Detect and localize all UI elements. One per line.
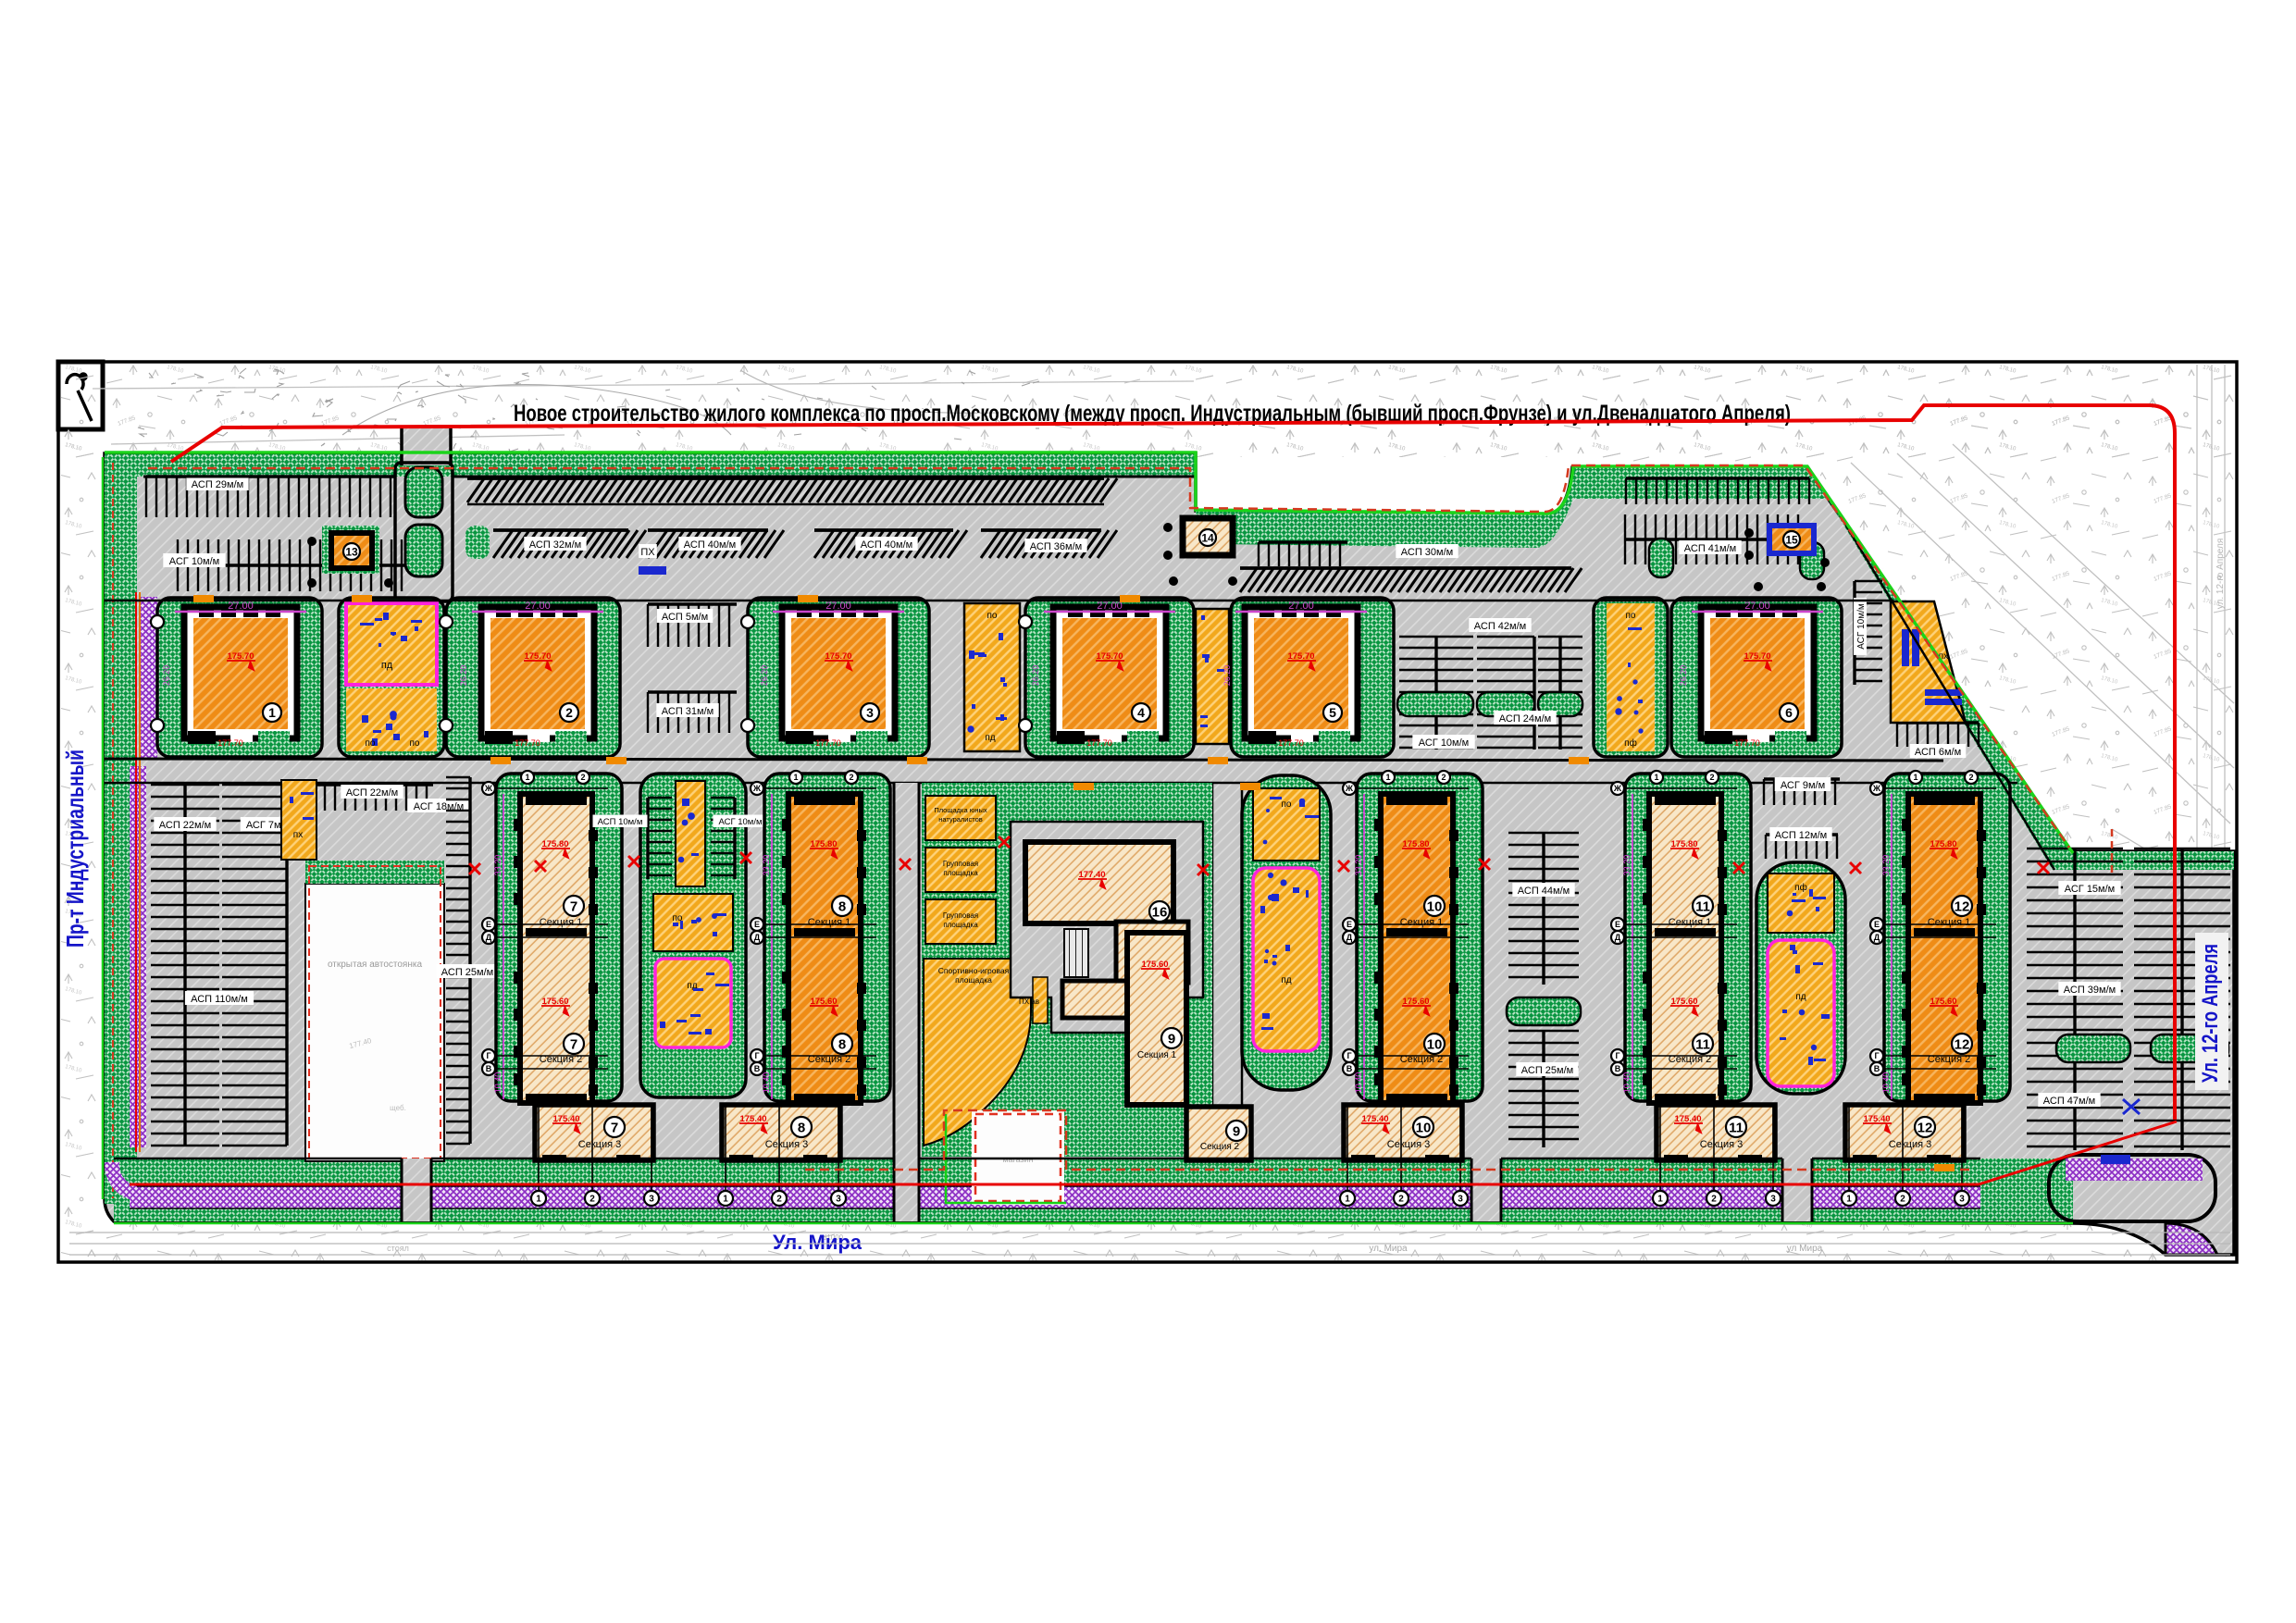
svg-text:АСП 30м/м: АСП 30м/м [1401,547,1453,558]
svg-text:Д: Д [1347,933,1353,942]
svg-text:ПХ: ПХ [640,547,655,558]
svg-text:площадка: площадка [943,921,978,929]
svg-text:8: 8 [838,1036,846,1052]
svg-text:пд: пд [1281,975,1291,985]
svg-text:175.70: 175.70 [1744,651,1770,662]
svg-text:27.00: 27.00 [1288,601,1314,612]
svg-text:27.00: 27.00 [1744,601,1770,612]
svg-text:33.20: 33.20 [1354,855,1363,876]
svg-text:Д: Д [486,933,492,942]
svg-text:177.70: 177.70 [1086,738,1112,748]
svg-text:1: 1 [1385,773,1390,782]
svg-text:2: 2 [776,1195,782,1205]
svg-text:175.60: 175.60 [1930,997,1956,1007]
svg-text:АСГ 10м/м: АСГ 10м/м [169,556,219,567]
svg-text:АСП 40м/м: АСП 40м/м [684,539,736,551]
svg-text:8: 8 [838,898,846,914]
svg-text:175.60: 175.60 [810,997,837,1007]
svg-text:2: 2 [1398,1195,1404,1205]
svg-text:177.70: 177.70 [815,738,841,748]
svg-text:9: 9 [1168,1031,1175,1047]
svg-text:Е: Е [754,920,760,929]
svg-text:2: 2 [590,1195,595,1205]
svg-text:АСП 24м/м: АСП 24м/м [1499,713,1551,725]
svg-text:1: 1 [268,705,276,720]
svg-text:175.40: 175.40 [552,1114,579,1124]
svg-text:АСП 47м/м: АСП 47м/м [2043,1096,2095,1107]
svg-text:АСП 29м/м: АСП 29м/м [192,479,243,490]
svg-text:стоял: стоял [387,1244,409,1253]
svg-text:177.70: 177.70 [515,738,540,748]
svg-text:9: 9 [1233,1123,1240,1139]
svg-text:АСП 42м/м: АСП 42м/м [1474,621,1526,632]
svg-text:Д: Д [754,933,761,942]
svg-text:по: по [1282,799,1292,810]
svg-text:Пр-т Индустриальный: Пр-т Индустриальный [61,750,89,948]
svg-text:3: 3 [836,1195,841,1205]
svg-text:В: В [754,1064,761,1073]
svg-text:3: 3 [1458,1195,1463,1205]
svg-text:пд: пд [381,660,393,671]
svg-text:7: 7 [611,1120,618,1135]
svg-text:Д: Д [1874,933,1880,942]
svg-text:175.40: 175.40 [1863,1114,1890,1124]
svg-text:щеб.: щеб. [390,1104,406,1112]
svg-text:Секция 1: Секция 1 [1137,1050,1177,1060]
svg-text:177.40: 177.40 [1078,870,1105,880]
svg-text:175.70: 175.70 [1096,651,1123,662]
svg-text:АСП 22м/м: АСП 22м/м [346,787,398,799]
svg-text:В: В [1874,1064,1880,1073]
svg-text:27.00: 27.00 [825,601,851,612]
svg-text:Ул. 12-го Апреля: Ул. 12-го Апреля [2198,944,2223,1083]
svg-text:11: 11 [1695,898,1710,914]
svg-text:175.70: 175.70 [227,651,254,662]
svg-text:АСП 32м/м: АСП 32м/м [529,539,581,551]
svg-text:В: В [1347,1064,1353,1073]
svg-text:площадка: площадка [943,869,978,877]
svg-text:Ж: Ж [752,784,762,793]
svg-text:ПХ,ав: ПХ,ав [1019,997,1039,1006]
svg-text:Ж: Ж [484,784,493,793]
svg-text:8: 8 [798,1120,805,1135]
svg-text:пф: пф [1624,737,1637,749]
svg-text:Г: Г [1615,1051,1620,1060]
svg-text:7: 7 [570,1036,577,1052]
svg-text:1: 1 [1657,1195,1663,1205]
svg-text:ул. Мира: ул. Мира [1369,1244,1408,1254]
svg-text:по: по [366,738,376,749]
svg-text:АСГ 10м/м: АСГ 10м/м [1419,737,1469,749]
svg-text:11: 11 [1695,1036,1710,1052]
svg-text:16: 16 [1152,904,1168,920]
svg-text:175.80: 175.80 [1930,839,1956,849]
svg-text:10.40: 10.40 [1354,1072,1363,1094]
svg-text:2: 2 [565,705,573,720]
svg-text:Ул. Мира: Ул. Мира [773,1231,863,1254]
svg-text:АСП 40м/м: АСП 40м/м [861,539,912,551]
svg-text:26.20: 26.20 [1031,665,1040,687]
svg-text:Ж: Ж [1345,784,1354,793]
svg-text:1: 1 [1654,773,1658,782]
svg-text:Е: Е [1615,920,1620,929]
svg-text:175.80: 175.80 [1670,839,1697,849]
svg-text:В: В [1615,1064,1621,1073]
svg-text:АСП 36м/м: АСП 36м/м [1030,541,1082,552]
svg-text:по: по [410,738,420,749]
svg-text:АСП 22м/м: АСП 22м/м [159,820,211,831]
svg-text:10.40: 10.40 [1622,1072,1632,1094]
svg-text:7: 7 [570,898,577,914]
svg-text:Е: Е [486,920,491,929]
svg-text:пх: пх [293,830,303,840]
svg-text:13: 13 [345,545,358,558]
svg-text:27.00: 27.00 [228,601,254,612]
svg-text:Секция 3: Секция 3 [1700,1139,1743,1150]
svg-text:14: 14 [1201,531,1214,544]
svg-text:175.70: 175.70 [1287,651,1314,662]
svg-text:175.60: 175.60 [1402,997,1429,1007]
svg-text:Секция 1: Секция 1 [540,917,582,928]
svg-text:1: 1 [793,773,798,782]
svg-text:2: 2 [1711,1195,1717,1205]
svg-text:26.20: 26.20 [1679,665,1688,687]
svg-text:Секция 1: Секция 1 [1669,917,1711,928]
svg-text:2: 2 [849,773,853,782]
svg-text:1: 1 [1345,1195,1350,1205]
svg-text:175.60: 175.60 [1670,997,1697,1007]
svg-text:Ж: Ж [1872,784,1881,793]
svg-text:26.20: 26.20 [459,665,468,687]
svg-text:Групповая: Групповая [943,860,978,868]
svg-text:Ж: Ж [1613,784,1622,793]
svg-text:33.20: 33.20 [762,855,771,876]
svg-text:натуралистов: натуралистов [938,815,983,824]
svg-text:3: 3 [866,705,874,720]
svg-text:АСП 6м/м: АСП 6м/м [1915,747,1961,758]
svg-text:177.70: 177.70 [1734,738,1760,748]
svg-text:Секция 1: Секция 1 [1928,917,1970,928]
svg-text:2: 2 [580,773,585,782]
svg-text:3: 3 [649,1195,654,1205]
svg-text:1: 1 [1846,1195,1852,1205]
svg-text:пф: пф [1794,882,1807,893]
svg-text:175.40: 175.40 [1674,1114,1701,1124]
svg-text:3: 3 [1770,1195,1776,1205]
svg-text:Е: Е [1347,920,1352,929]
svg-text:ул Мира: ул Мира [1787,1244,1823,1254]
svg-text:АСГ 9м/м: АСГ 9м/м [1781,780,1825,791]
svg-text:АСП 5м/м: АСП 5м/м [662,612,708,623]
svg-text:2: 2 [1968,773,1973,782]
svg-text:по: по [1626,611,1636,621]
svg-text:1: 1 [536,1195,541,1205]
svg-text:2: 2 [1900,1195,1905,1205]
svg-text:10.40: 10.40 [1881,1072,1891,1094]
svg-text:177.70: 177.70 [217,738,243,748]
svg-text:Г: Г [1347,1051,1351,1060]
svg-text:Г: Г [1874,1051,1879,1060]
svg-text:Секция 3: Секция 3 [578,1139,621,1150]
svg-text:открытая автостоянка: открытая автостоянка [328,960,423,970]
svg-text:АСП 39м/м: АСП 39м/м [2064,985,2116,996]
svg-text:10.40: 10.40 [493,1072,503,1094]
svg-text:27.00: 27.00 [525,601,551,612]
svg-text:АСП 110м/м: АСП 110м/м [191,994,248,1005]
svg-text:175.40: 175.40 [739,1114,766,1124]
svg-text:10: 10 [1427,1036,1443,1052]
svg-text:2: 2 [1441,773,1446,782]
svg-text:Г: Г [486,1051,490,1060]
svg-text:12: 12 [1955,898,1970,914]
svg-text:175.60: 175.60 [1141,960,1168,970]
svg-text:Спортивно-игровая: Спортивно-игровая [938,966,1010,975]
svg-text:по: по [987,611,998,621]
svg-text:175.80: 175.80 [1402,839,1429,849]
svg-text:Д: Д [1615,933,1621,942]
svg-text:175.70: 175.70 [524,651,551,662]
svg-text:АСГ 10м/м: АСГ 10м/м [1856,603,1867,650]
svg-text:175.80: 175.80 [810,839,837,849]
svg-text:175.80: 175.80 [541,839,568,849]
svg-text:АСП 10м/м: АСП 10м/м [598,817,643,827]
svg-text:33.20: 33.20 [1881,855,1891,876]
svg-text:175.60: 175.60 [541,997,568,1007]
svg-text:Г: Г [754,1051,759,1060]
svg-text:В: В [486,1064,492,1073]
svg-text:Секция 3: Секция 3 [1387,1139,1430,1150]
svg-text:АСП 25м/м: АСП 25м/м [441,967,493,978]
svg-text:3: 3 [1959,1195,1965,1205]
svg-text:АСП 31м/м: АСП 31м/м [662,706,714,717]
svg-text:12: 12 [1917,1120,1933,1135]
svg-text:Секция 3: Секция 3 [765,1139,808,1150]
svg-text:15: 15 [1785,533,1798,546]
svg-text:33.20: 33.20 [1622,855,1632,876]
svg-text:33.20: 33.20 [493,855,503,876]
svg-text:площадка: площадка [955,975,992,985]
svg-text:27.00: 27.00 [1097,601,1123,612]
svg-text:Секция 1: Секция 1 [808,917,850,928]
svg-text:10.40: 10.40 [762,1072,771,1094]
svg-text:11: 11 [1729,1120,1744,1135]
svg-text:177.70: 177.70 [1278,738,1304,748]
svg-text:АСГ 15м/м: АСГ 15м/м [2065,884,2115,895]
svg-text:Е: Е [1874,920,1880,929]
svg-text:АСП 41м/м: АСП 41м/м [1684,543,1736,554]
svg-text:АСП 44м/м: АСП 44м/м [1518,886,1570,897]
svg-text:10: 10 [1416,1120,1432,1135]
svg-text:Секция 2: Секция 2 [1200,1142,1240,1152]
svg-text:4: 4 [1137,705,1145,720]
svg-text:ул. 12-го Апреля: ул. 12-го Апреля [2215,539,2226,610]
svg-text:1: 1 [1913,773,1917,782]
svg-text:5: 5 [1329,705,1336,720]
svg-text:175.70: 175.70 [825,651,851,662]
svg-text:АСГ 10м/м: АСГ 10м/м [718,817,762,827]
svg-text:12: 12 [1955,1036,1970,1052]
svg-text:10: 10 [1427,898,1443,914]
svg-text:26.20: 26.20 [760,665,769,687]
svg-text:2: 2 [1709,773,1714,782]
svg-text:АСП 12м/м: АСП 12м/м [1775,830,1827,841]
svg-text:пд: пд [985,733,995,743]
svg-text:6: 6 [1785,705,1793,720]
svg-text:1: 1 [723,1195,728,1205]
svg-text:26.20: 26.20 [162,665,171,687]
svg-text:Площадка юных: Площадка юных [934,806,987,814]
svg-text:АСП 25м/м: АСП 25м/м [1521,1065,1573,1076]
svg-text:1: 1 [525,773,529,782]
svg-text:26.20: 26.20 [1222,665,1232,687]
svg-text:Секция 1: Секция 1 [1400,917,1443,928]
svg-text:пд: пд [1795,992,1806,1002]
svg-text:Групповая: Групповая [943,911,978,920]
svg-text:Секция 3: Секция 3 [1889,1139,1931,1150]
svg-text:175.40: 175.40 [1361,1114,1388,1124]
